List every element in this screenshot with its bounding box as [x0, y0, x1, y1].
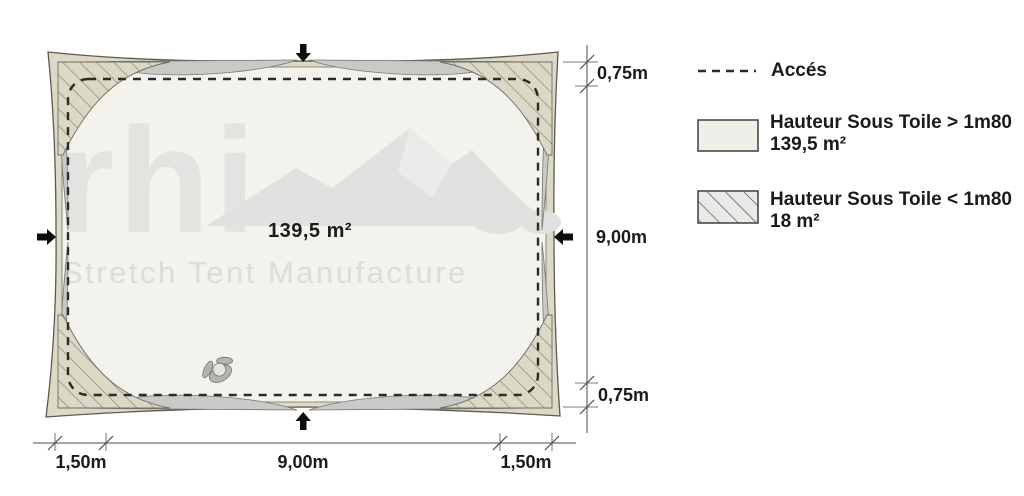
tent-plan-drawing: rhi Stretch Tent Manufacture [0, 0, 1024, 496]
arrow-top-icon [296, 44, 312, 62]
arrow-left-icon [37, 229, 56, 245]
arrow-bottom-icon [296, 412, 312, 430]
legend-over-1m80-area: 139,5 m² [770, 134, 1012, 156]
dim-bottom-right: 1,50m [486, 451, 566, 473]
legend-under-1m80-area: 18 m² [770, 211, 1012, 233]
legend-over-1m80-label: Hauteur Sous Toile > 1m80 [770, 112, 1012, 134]
legend-swatch-over-1m80 [698, 120, 758, 151]
legend-under-1m80-label: Hauteur Sous Toile < 1m80 [770, 189, 1012, 211]
watermark-tagline-text: Stretch Tent Manufacture [62, 255, 468, 290]
dim-right-top: 0,75m [597, 62, 648, 84]
arrow-right-icon [554, 229, 573, 245]
dim-right-middle: 9,00m [596, 226, 647, 248]
legend-under-1m80-block: Hauteur Sous Toile < 1m80 18 m² [770, 189, 1012, 232]
legend-graphics [698, 71, 758, 223]
dim-bottom-left: 1,50m [41, 451, 121, 473]
legend-swatch-under-1m80 [698, 191, 758, 223]
legend-over-1m80-block: Hauteur Sous Toile > 1m80 139,5 m² [770, 112, 1012, 155]
dim-right-bottom: 0,75m [598, 384, 649, 406]
tent-area-label: 139,5 m² [210, 220, 410, 243]
dim-bottom-center: 9,00m [263, 451, 343, 473]
tent-plan-page: rhi Stretch Tent Manufacture [0, 0, 1024, 496]
legend-access-label: Accés [771, 60, 827, 82]
